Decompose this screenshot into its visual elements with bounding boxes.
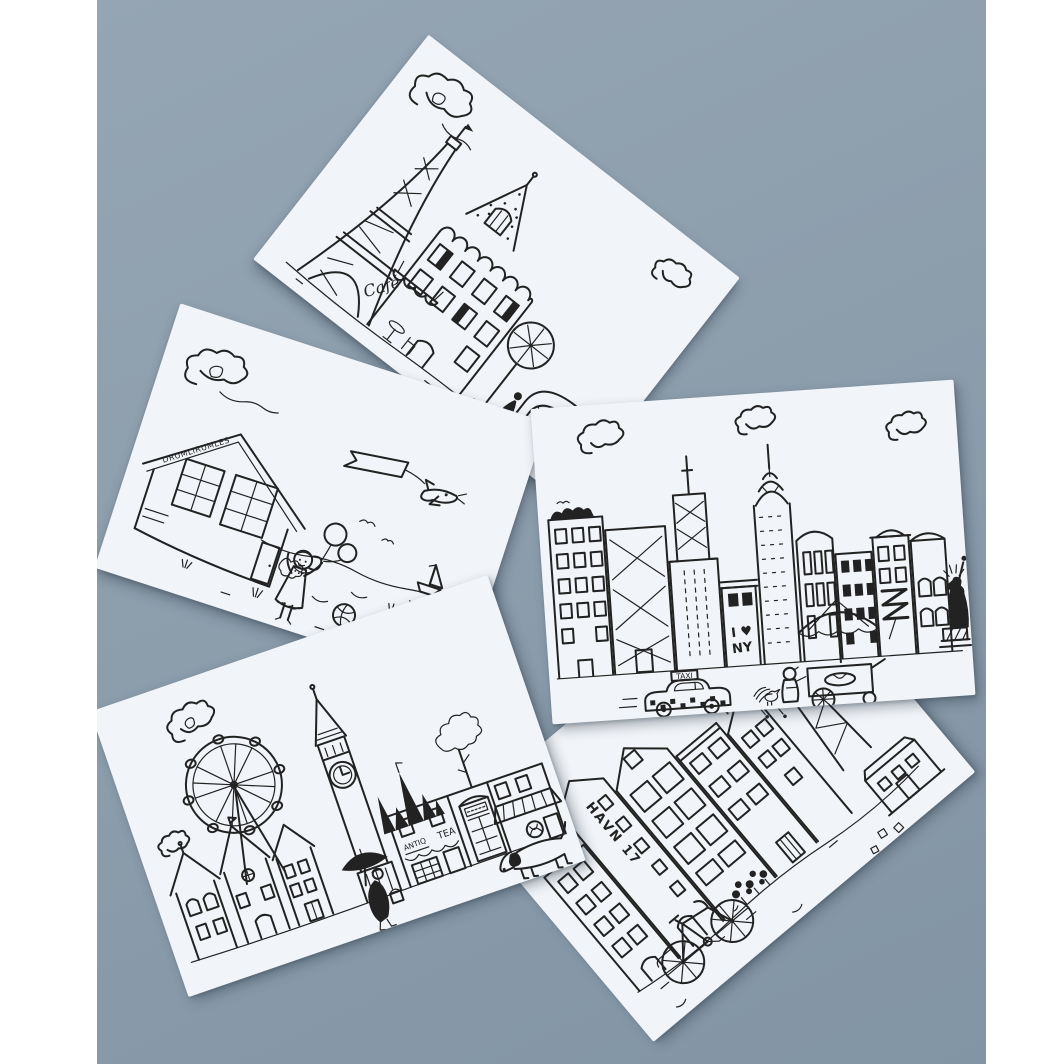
new-york-postcard: I ♥ NY TAXI xyxy=(530,380,975,725)
svg-text:I ♥: I ♥ xyxy=(730,624,753,641)
cloud-icon xyxy=(648,251,696,297)
cafe-sign: Café xyxy=(361,272,402,301)
empire-state-building-icon xyxy=(662,455,725,670)
cloud-icon xyxy=(180,340,292,415)
seagull-icon xyxy=(356,519,397,544)
cloud-icon xyxy=(117,696,254,858)
tea-shop-icon xyxy=(387,763,566,886)
london-postcard: ANTIQ TEA xyxy=(97,575,586,997)
bananas-icon xyxy=(754,687,773,702)
fire-escape-icon xyxy=(605,526,675,674)
nyhavn-houses-icon xyxy=(548,685,817,957)
london-illustration: ANTIQ TEA xyxy=(97,575,586,997)
cloud-icon xyxy=(576,394,927,462)
montmartre-tower-icon xyxy=(466,155,559,251)
arched-window-building xyxy=(910,532,952,653)
taxi-sign: TAXI xyxy=(675,671,693,681)
airplane-banner-icon xyxy=(341,444,471,514)
chrysler-building-icon xyxy=(750,443,801,663)
havn-sign: HAVN 17 xyxy=(582,800,643,869)
bistro-table-icon xyxy=(380,319,420,356)
pigeon-icon xyxy=(765,689,781,705)
pretzel-icon xyxy=(525,819,545,839)
balloons-icon xyxy=(316,521,364,570)
skyscraper-icon xyxy=(548,516,613,677)
svg-text:NY: NY xyxy=(731,640,754,657)
westminster-spires-icon xyxy=(363,753,444,834)
gabled-houses-icon xyxy=(153,794,337,962)
taxi-icon xyxy=(617,668,731,720)
cobblestones xyxy=(674,818,905,1015)
photo-backdrop: Café xyxy=(97,0,986,1064)
page: Café xyxy=(0,0,1064,1064)
street-vendor-icon xyxy=(781,667,808,703)
shop-sign-tea: TEA xyxy=(435,825,457,842)
small-house-icon xyxy=(857,731,944,816)
statue-of-liberty-icon xyxy=(934,556,973,648)
graffiti-i-love-ny: I ♥ NY xyxy=(729,624,755,657)
house-sign: DRUMLIRUMLES xyxy=(161,436,231,465)
skyscraper-icon xyxy=(796,530,841,660)
new-york-illustration: I ♥ NY TAXI xyxy=(530,380,975,725)
shop-sign-antique: ANTIQ xyxy=(402,836,427,853)
